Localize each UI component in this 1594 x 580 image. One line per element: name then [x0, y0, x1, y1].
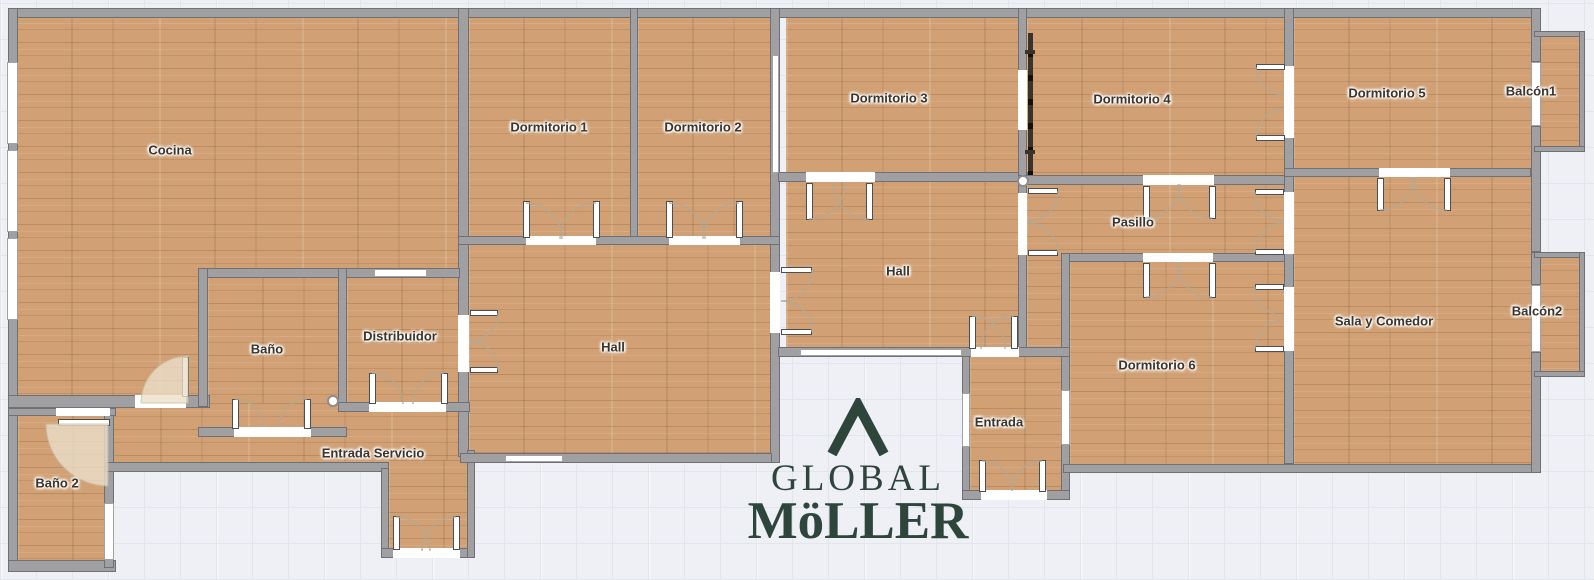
room-label-dormitorio-3: Dormitorio 3 [850, 91, 927, 106]
door-leaf[interactable] [182, 357, 189, 397]
door-leaf[interactable] [1011, 316, 1018, 349]
room-label-entrada-servicio: Entrada Servicio [322, 446, 425, 461]
door-leaf[interactable] [441, 373, 448, 404]
window[interactable] [505, 455, 563, 462]
window[interactable] [1061, 390, 1070, 445]
door-leaf[interactable] [1028, 250, 1058, 256]
window[interactable] [374, 269, 427, 277]
door-leaf[interactable] [1255, 249, 1284, 255]
room-label-dormitorio-6: Dormitorio 6 [1118, 358, 1195, 373]
door-opening[interactable] [458, 315, 469, 372]
door-leaf[interactable] [1444, 178, 1451, 211]
room-label-cocina: Cocina [148, 143, 191, 158]
wall-segment [338, 268, 347, 408]
logo-caret-icon [824, 398, 892, 456]
room-label-dormitorio-2: Dormitorio 2 [664, 120, 741, 135]
floor-plan-canvas[interactable]: CocinaDormitorio 1Dormitorio 2Dormitorio… [0, 0, 1594, 580]
door-opening[interactable] [234, 427, 311, 437]
balcony-wall-segment [1579, 31, 1585, 152]
window[interactable] [772, 55, 779, 173]
sliding-door-hardware[interactable] [1025, 50, 1035, 54]
room-pasillo-floor[interactable] [1026, 184, 1285, 254]
room-label-hall-superior: Hall [886, 264, 910, 279]
wall-segment [630, 8, 638, 242]
global-moller-logo: GLOBAL MöLLER [752, 398, 964, 546]
door-opening[interactable] [770, 272, 780, 333]
door-opening[interactable] [369, 402, 446, 412]
door-opening[interactable] [1018, 193, 1027, 255]
door-leaf[interactable] [806, 183, 813, 220]
room-label-balcon-2: Balcón2 [1512, 304, 1563, 319]
wall-segment [198, 268, 208, 407]
window[interactable] [104, 503, 114, 560]
room-label-entrada: Entrada [975, 415, 1023, 430]
door-opening[interactable] [135, 395, 186, 408]
window[interactable] [1531, 285, 1541, 352]
door-leaf[interactable] [58, 419, 110, 426]
door-opening[interactable] [1018, 70, 1027, 130]
wall-segment [8, 560, 116, 572]
door-leaf[interactable] [1256, 135, 1285, 141]
wall-segment [105, 462, 389, 472]
door-leaf[interactable] [232, 399, 239, 429]
door-opening[interactable] [669, 236, 740, 245]
room-label-balcon-1: Balcón1 [1506, 84, 1557, 99]
door-leaf[interactable] [1256, 64, 1285, 70]
room-label-distribuidor: Distribuidor [363, 329, 437, 344]
door-leaf[interactable] [1255, 189, 1284, 195]
door-leaf[interactable] [1209, 263, 1216, 298]
room-label-bano-2: Baño 2 [35, 476, 78, 491]
wall-segment [467, 450, 475, 558]
balcony-wall-segment [1534, 371, 1585, 377]
door-opening[interactable] [981, 490, 1047, 500]
door-opening[interactable] [1284, 192, 1294, 254]
door-pivot [327, 395, 339, 407]
wall-segment [458, 8, 469, 457]
door-leaf[interactable] [1255, 284, 1284, 290]
door-leaf[interactable] [304, 399, 311, 429]
door-leaf[interactable] [453, 516, 460, 550]
door-leaf[interactable] [969, 316, 976, 349]
door-leaf[interactable] [369, 373, 376, 404]
room-label-hall-inferior: Hall [601, 340, 625, 355]
door-leaf[interactable] [1143, 263, 1150, 298]
door-leaf[interactable] [1039, 460, 1046, 492]
door-leaf[interactable] [781, 267, 812, 273]
door-leaf[interactable] [781, 329, 812, 335]
door-opening[interactable] [1143, 175, 1214, 185]
room-label-sala-y-comedor: Sala y Comedor [1335, 314, 1433, 329]
door-leaf[interactable] [979, 460, 986, 492]
room-label-bano: Baño [251, 342, 284, 357]
window[interactable] [7, 150, 18, 232]
wall-segment [1531, 126, 1541, 252]
door-pivot [1017, 175, 1029, 187]
door-leaf[interactable] [593, 201, 600, 238]
door-opening[interactable] [1143, 253, 1213, 262]
door-leaf[interactable] [1209, 186, 1216, 219]
door-leaf[interactable] [470, 367, 498, 373]
door-opening[interactable] [1284, 66, 1294, 138]
room-label-dormitorio-5: Dormitorio 5 [1348, 86, 1425, 101]
door-opening[interactable] [393, 548, 460, 558]
door-leaf[interactable] [736, 201, 743, 238]
balcony-wall-segment [1534, 31, 1585, 37]
door-leaf[interactable] [1255, 346, 1284, 352]
door-opening[interactable] [56, 408, 110, 416]
wall-segment [381, 468, 389, 554]
room-label-dormitorio-4: Dormitorio 4 [1093, 92, 1170, 107]
logo-line2: MöLLER [742, 497, 974, 546]
window[interactable] [800, 349, 962, 356]
door-leaf[interactable] [393, 516, 400, 550]
door-leaf[interactable] [866, 183, 873, 220]
door-opening[interactable] [1379, 168, 1450, 177]
door-leaf[interactable] [523, 201, 530, 238]
room-label-pasillo: Pasillo [1112, 215, 1154, 230]
door-leaf[interactable] [666, 201, 673, 238]
door-leaf[interactable] [1377, 178, 1384, 211]
wall-segment [1061, 253, 1070, 500]
door-leaf[interactable] [1028, 188, 1058, 194]
balcony-wall-segment [1534, 252, 1585, 258]
window[interactable] [7, 238, 18, 320]
wall-segment [1063, 464, 1541, 473]
window[interactable] [7, 62, 18, 144]
room-label-dormitorio-1: Dormitorio 1 [510, 120, 587, 135]
balcony-wall-segment [1534, 146, 1585, 152]
sliding-door-hardware[interactable] [1025, 150, 1035, 154]
door-opening[interactable] [1284, 287, 1294, 351]
door-opening[interactable] [526, 236, 596, 245]
balcony-wall-segment [1579, 252, 1585, 377]
door-opening[interactable] [806, 172, 875, 182]
door-leaf[interactable] [470, 310, 498, 316]
